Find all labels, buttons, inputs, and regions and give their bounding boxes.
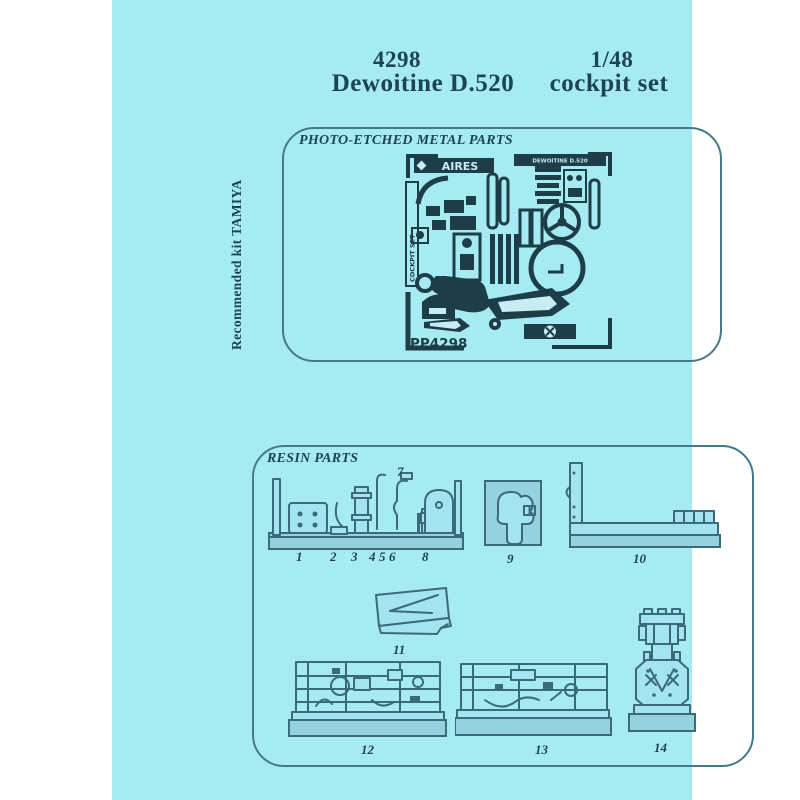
etched-part (444, 200, 464, 213)
product-type: cockpit set (536, 71, 682, 97)
ladder-part (537, 183, 559, 188)
fret-code-label: PP4298 (410, 336, 467, 352)
strap-part (498, 234, 503, 284)
panel-part (564, 170, 586, 202)
part-8-shape (421, 490, 453, 533)
etched-part (450, 216, 476, 230)
part-number-label-7: 7 (397, 464, 404, 480)
product-scale: 1/48 (567, 48, 657, 72)
ladder-part (535, 191, 561, 196)
scanned-sheet: 4298 1/48 Dewoitine D.520 cockpit set Re… (0, 0, 800, 800)
part-4-shape (377, 475, 385, 529)
part-number-label-13: 13 (535, 742, 548, 758)
part-number-label-14: 14 (654, 740, 667, 756)
etched-part (462, 238, 472, 248)
part-14-shape (629, 609, 695, 731)
strap-part (488, 174, 497, 228)
part9-diagram (484, 480, 542, 548)
part-2-shape (331, 503, 347, 534)
headrest-slot (429, 308, 446, 314)
resin-row1-diagram (267, 463, 467, 555)
fret-brand-label: AIRES (442, 160, 479, 173)
etched-part (466, 196, 476, 205)
etched-part (460, 254, 474, 270)
casting-wall (455, 481, 461, 535)
part10-diagram (562, 461, 728, 551)
ladder-part (535, 166, 561, 172)
etched-part (432, 220, 446, 230)
etched-part (520, 210, 530, 246)
ladder-part (537, 199, 559, 204)
part-12-shape (289, 662, 446, 736)
buckle-part (524, 324, 576, 339)
product-name: Dewoitine D.520 (316, 71, 530, 97)
part11-diagram (370, 585, 454, 641)
part-3-shape (352, 487, 371, 533)
control-wheel-shape (545, 205, 579, 239)
gunsight-dial-shape (531, 242, 583, 294)
part12-diagram (288, 656, 448, 738)
part-number-label-1: 1 (296, 549, 303, 565)
part-10-shape (567, 463, 721, 547)
part-number-label-3: 3 (351, 549, 358, 565)
strap-part (500, 178, 508, 224)
etched-part (426, 206, 440, 216)
ladder-part (535, 175, 561, 180)
rosette-part (489, 318, 501, 330)
part-1-shape (289, 503, 327, 533)
instruction-paper: 4298 1/48 Dewoitine D.520 cockpit set Re… (112, 0, 692, 800)
part-number-label-5: 5 (379, 549, 386, 565)
part-number-label-9: 9 (507, 551, 514, 567)
recommended-kit-note: Recommended kit TAMIYA (229, 158, 245, 350)
part-11-shape (376, 588, 451, 634)
part-13-shape (455, 664, 611, 735)
strap-part (590, 180, 599, 228)
panel-part (567, 175, 573, 181)
photo-etched-fret-diagram: AIRES DEWOITINE D.520 COCKPIT SET (402, 150, 614, 354)
strap-part (514, 234, 519, 284)
fret-model-label: DEWOITINE D.520 (532, 159, 587, 165)
etched-part (532, 210, 542, 246)
product-number: 4298 (342, 48, 452, 72)
panel-part (568, 188, 582, 197)
part-number-label-2: 2 (330, 549, 337, 565)
part14-diagram (624, 607, 702, 735)
part-number-label-10: 10 (633, 551, 646, 567)
etched-part (416, 231, 424, 239)
strap-part (490, 234, 495, 284)
panel-part (576, 175, 582, 181)
strap-part (506, 234, 511, 284)
part-number-label-4: 4 (369, 549, 376, 565)
seat-frame-shape (418, 178, 448, 204)
casting-wall (273, 479, 280, 535)
part13-diagram (455, 656, 613, 736)
part-number-label-8: 8 (422, 549, 429, 565)
pivot-part (417, 275, 433, 291)
part-number-label-12: 12 (361, 742, 374, 758)
photo-etched-title: PHOTO-ETCHED METAL PARTS (299, 133, 513, 149)
part-number-label-6: 6 (389, 549, 396, 565)
part-7-shape (394, 473, 412, 529)
part-number-label-11: 11 (393, 642, 405, 658)
